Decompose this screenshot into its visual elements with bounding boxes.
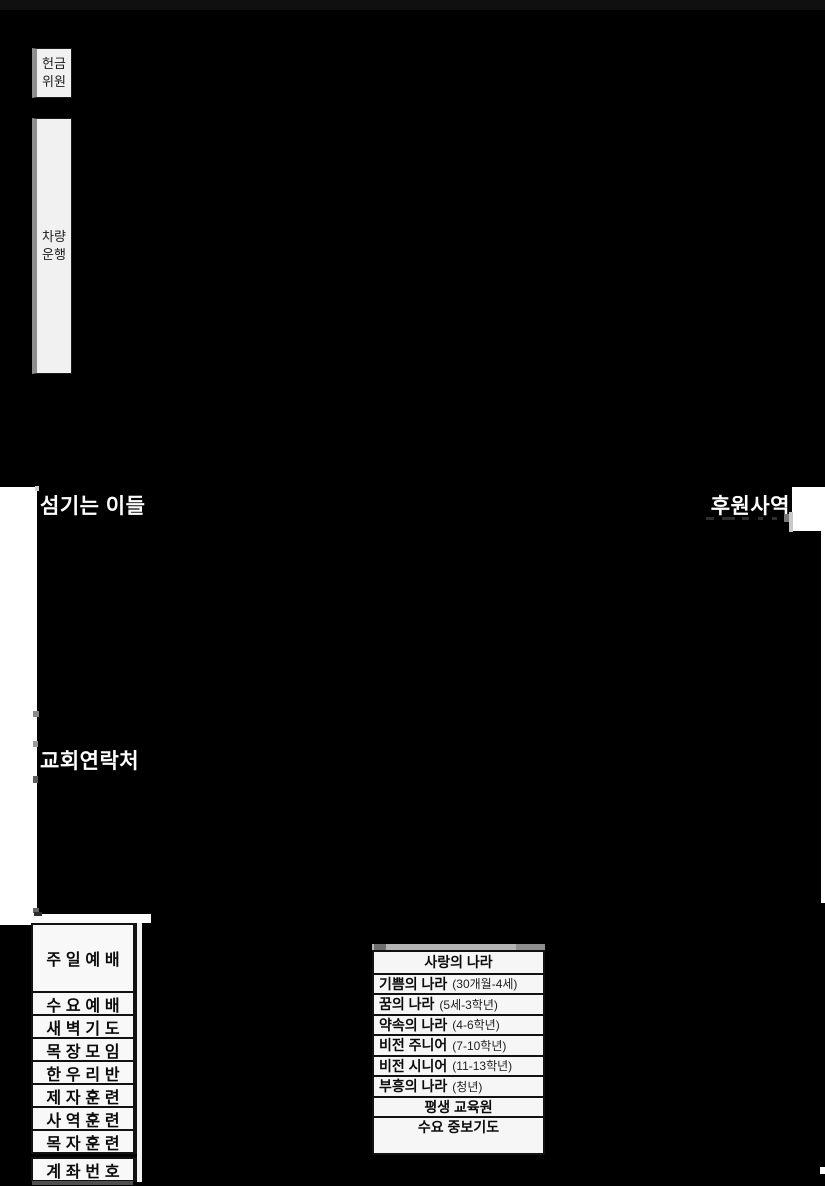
ministry-age-range: (11-13학년) xyxy=(452,1057,512,1074)
table-row: 기쁨의 나라 (30개월-4세) xyxy=(374,973,543,994)
account-row-label: 계좌번호 xyxy=(42,1159,125,1180)
redaction-artifact xyxy=(722,517,735,520)
ministry-name: 부흥의 나라 xyxy=(379,1076,447,1095)
ministry-age-range: (30개월-4세) xyxy=(452,975,517,992)
ministry-age-range: (청년) xyxy=(452,1078,482,1095)
redaction-artifact xyxy=(789,512,793,532)
schedule-row-label: 목자훈련 xyxy=(42,1130,125,1153)
table-row: 평생 교육원 xyxy=(374,1096,543,1117)
right-edge-white-strip xyxy=(821,531,825,903)
table-row: 주일예배 xyxy=(33,925,133,991)
bottom-gray-smudge xyxy=(32,1181,133,1185)
ministry-footer-label: 수요 중보기도 xyxy=(418,1117,499,1136)
redaction-artifact xyxy=(706,517,714,520)
schedule-row-label: 사역훈련 xyxy=(42,1107,125,1130)
ministry-header-label: 사랑의 나라 xyxy=(424,952,492,972)
redaction-artifact xyxy=(772,517,777,520)
schedule-table-top-band xyxy=(31,914,151,923)
table-row: 목자훈련 xyxy=(33,1129,133,1152)
redaction-artifact xyxy=(742,517,749,520)
offering-box-line2: 위원 xyxy=(42,73,66,91)
table-row: 비전 시니어 (11-13학년) xyxy=(374,1055,543,1076)
left-margin-strip xyxy=(0,487,37,925)
table-row: 비전 주니어 (7-10학년) xyxy=(374,1034,543,1055)
schedule-row-label: 한우리반 xyxy=(42,1061,125,1084)
top-shade-band xyxy=(0,0,825,10)
ministry-table: 사랑의 나라 기쁨의 나라 (30개월-4세) 꿈의 나라 (5세-3학년) 약… xyxy=(372,950,545,1155)
ministry-name: 비전 시니어 xyxy=(379,1056,447,1075)
schedule-table-right-sliver xyxy=(137,923,142,1182)
table-row: 사랑의 나라 xyxy=(374,952,543,973)
account-number-row: 계좌번호 xyxy=(31,1157,137,1182)
schedule-row-label: 제자훈련 xyxy=(42,1084,125,1107)
right-edge-white-speck xyxy=(820,1167,825,1174)
offering-box-line1: 헌금 xyxy=(42,55,66,73)
bulletin-page: 헌금 위원 차량 운행 섬기는 이들 후원사역 교회연락처 주일예배 수요예배 … xyxy=(0,0,825,1186)
vehicle-service-box: 차량 운행 xyxy=(32,118,72,374)
ministry-age-range: (7-10학년) xyxy=(452,1037,506,1054)
table-row: 목장모임 xyxy=(33,1037,133,1060)
redaction-artifact xyxy=(33,776,38,783)
redaction-artifact xyxy=(33,741,38,747)
table-row: 계좌번호 xyxy=(33,1159,133,1180)
table-row: 사역훈련 xyxy=(33,1106,133,1129)
table-row: 수요 중보기도 xyxy=(374,1116,543,1137)
table-row: 수요예배 xyxy=(33,991,133,1014)
ministry-name: 약속의 나라 xyxy=(379,1015,447,1034)
top-right-white-block xyxy=(792,487,825,531)
schedule-row-label: 목장모임 xyxy=(42,1038,125,1061)
ministry-name: 꿈의 나라 xyxy=(379,994,434,1013)
ministry-name: 기쁨의 나라 xyxy=(379,974,447,993)
redaction-artifact xyxy=(34,912,42,916)
table-row: 약속의 나라 (4-6학년) xyxy=(374,1014,543,1035)
ministry-footer-label: 평생 교육원 xyxy=(424,1097,492,1116)
table-row: 부흥의 나라 (청년) xyxy=(374,1075,543,1096)
schedule-row-label: 주일예배 xyxy=(42,946,125,970)
table-row: 한우리반 xyxy=(33,1060,133,1083)
ministry-age-range: (5세-3학년) xyxy=(439,996,497,1013)
table-row: 제자훈련 xyxy=(33,1083,133,1106)
table-row: 새벽기도 xyxy=(33,1014,133,1037)
vehicle-box-line1: 차량 xyxy=(42,228,66,246)
schedule-row-label: 수요예배 xyxy=(42,992,125,1015)
redaction-artifact xyxy=(758,517,763,520)
redaction-artifact xyxy=(33,711,39,717)
vehicle-box-line2: 운행 xyxy=(42,246,66,264)
schedule-table: 주일예배 수요예배 새벽기도 목장모임 한우리반 제자훈련 사역훈련 목자훈련 xyxy=(31,923,137,1154)
redaction-artifact xyxy=(35,486,39,491)
schedule-row-label: 새벽기도 xyxy=(42,1015,125,1038)
ministry-age-range: (4-6학년) xyxy=(452,1016,499,1033)
offering-committee-box: 헌금 위원 xyxy=(32,48,72,98)
section-title-church-contact: 교회연락처 xyxy=(40,747,139,777)
table-row: 꿈의 나라 (5세-3학년) xyxy=(374,993,543,1014)
section-title-serving: 섬기는 이들 xyxy=(40,492,145,522)
ministry-name: 비전 주니어 xyxy=(379,1035,447,1054)
